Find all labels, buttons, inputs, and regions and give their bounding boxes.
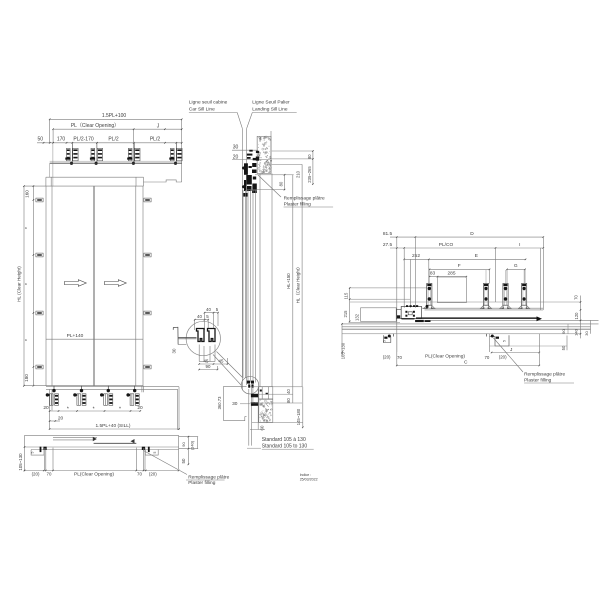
svg-text:Plaster filling: Plaster filling xyxy=(284,202,312,208)
svg-text:*: * xyxy=(119,406,121,412)
svg-text:145~180: 145~180 xyxy=(296,408,301,425)
svg-text:*: * xyxy=(93,406,95,412)
svg-text:Car Sill Line: Car Sill Line xyxy=(189,107,215,113)
svg-text:5: 5 xyxy=(31,451,35,453)
svg-text:Ligne Seuil Palier: Ligne Seuil Palier xyxy=(252,100,290,106)
svg-text:30: 30 xyxy=(233,145,239,151)
svg-text:83: 83 xyxy=(430,271,436,277)
svg-text:70: 70 xyxy=(137,472,142,477)
svg-text:PL(Clear Opening): PL(Clear Opening) xyxy=(425,354,465,360)
svg-text:*: * xyxy=(25,339,31,341)
svg-text:40: 40 xyxy=(206,307,211,312)
svg-text:90: 90 xyxy=(181,442,186,447)
svg-text:5: 5 xyxy=(503,340,507,342)
svg-text:160: 160 xyxy=(25,190,30,198)
svg-text:PL/CO: PL/CO xyxy=(439,242,454,248)
svg-text:81.5: 81.5 xyxy=(383,231,393,237)
svg-text:210: 210 xyxy=(296,170,301,178)
svg-text:PL+140: PL+140 xyxy=(67,333,84,339)
svg-text:45: 45 xyxy=(219,359,224,364)
svg-text:70: 70 xyxy=(47,472,52,477)
svg-text:G: G xyxy=(514,263,518,269)
svg-text:Standard 105 à 130: Standard 105 à 130 xyxy=(262,437,306,443)
svg-text:90: 90 xyxy=(561,329,566,334)
svg-text:27.5: 27.5 xyxy=(383,242,393,248)
svg-text:140: 140 xyxy=(574,328,579,335)
svg-text:E: E xyxy=(475,253,478,259)
svg-text:70: 70 xyxy=(574,295,579,300)
svg-text:*: * xyxy=(25,283,31,285)
svg-text:Standard 105 to 130: Standard 105 to 130 xyxy=(262,444,308,450)
svg-text:Remplissage plâtre: Remplissage plâtre xyxy=(284,196,325,202)
svg-text:30: 30 xyxy=(584,331,589,336)
svg-text:20: 20 xyxy=(137,405,143,411)
svg-text:90: 90 xyxy=(206,364,211,369)
svg-text:Indice :: Indice : xyxy=(300,473,312,477)
svg-text:(20): (20) xyxy=(383,355,391,360)
svg-text:70: 70 xyxy=(397,355,402,360)
svg-text:Landing Sill Line: Landing Sill Line xyxy=(252,107,288,113)
svg-text:180: 180 xyxy=(24,374,29,382)
svg-text:PL/2: PL/2 xyxy=(108,137,119,143)
svg-text:360.73: 360.73 xyxy=(217,396,222,409)
svg-text:20: 20 xyxy=(43,405,49,411)
svg-text:20: 20 xyxy=(58,416,64,422)
svg-text:25/03/2022: 25/03/2022 xyxy=(300,478,318,482)
svg-text:C: C xyxy=(464,360,468,366)
svg-text:70: 70 xyxy=(484,355,489,360)
svg-text:80: 80 xyxy=(286,398,291,403)
svg-text:F: F xyxy=(458,263,461,269)
svg-text:105~130: 105~130 xyxy=(341,342,346,359)
svg-text:*: * xyxy=(25,227,31,229)
svg-text:40: 40 xyxy=(286,389,291,394)
svg-text:5: 5 xyxy=(382,340,386,342)
svg-text:252: 252 xyxy=(412,253,420,259)
svg-text:50: 50 xyxy=(38,137,44,143)
svg-text:40: 40 xyxy=(197,314,202,319)
svg-text:80: 80 xyxy=(278,181,283,186)
svg-text:PL（Clear Opening）: PL（Clear Opening） xyxy=(71,123,119,129)
svg-text:I: I xyxy=(519,242,520,248)
svg-text:(20): (20) xyxy=(499,355,507,360)
svg-text:30: 30 xyxy=(171,348,176,353)
svg-text:*: * xyxy=(67,406,69,412)
svg-text:Remplissage plâtre: Remplissage plâtre xyxy=(524,372,565,378)
svg-text:PL/2: PL/2 xyxy=(150,137,161,143)
svg-text:120: 120 xyxy=(574,312,579,320)
svg-text:Remplissage plâtre: Remplissage plâtre xyxy=(188,475,229,481)
svg-text:285: 285 xyxy=(447,271,455,277)
svg-text:50: 50 xyxy=(181,458,186,463)
svg-text:115: 115 xyxy=(343,292,348,299)
svg-text:(20): (20) xyxy=(32,471,40,476)
svg-text:(140): (140) xyxy=(190,440,195,450)
svg-text:1.5PL+40 (SILL): 1.5PL+40 (SILL) xyxy=(95,423,130,429)
svg-text:45: 45 xyxy=(204,359,209,364)
svg-text:170: 170 xyxy=(57,137,66,143)
svg-text:(20): (20) xyxy=(149,471,157,476)
svg-text:HL（Clear Height）: HL（Clear Height） xyxy=(296,265,301,304)
svg-text:PL(Clear Opening): PL(Clear Opening) xyxy=(74,472,114,478)
svg-text:235~265: 235~265 xyxy=(307,166,312,183)
svg-text:Plaster filling: Plaster filling xyxy=(524,378,552,384)
svg-text:HL (Clear Height): HL (Clear Height) xyxy=(17,266,22,302)
svg-text:1.5PL+100: 1.5PL+100 xyxy=(102,113,127,119)
svg-text:PL/2-170: PL/2-170 xyxy=(73,137,94,143)
svg-text:D: D xyxy=(470,231,474,237)
svg-text:132: 132 xyxy=(354,313,359,321)
svg-text:Ligne seuil cabine: Ligne seuil cabine xyxy=(189,100,228,106)
svg-text:HL+150: HL+150 xyxy=(286,273,291,289)
svg-text:5: 5 xyxy=(153,451,157,453)
svg-text:105~130: 105~130 xyxy=(18,453,23,471)
svg-text:215: 215 xyxy=(343,310,348,318)
svg-text:30: 30 xyxy=(232,401,238,407)
svg-text:Plaster filling: Plaster filling xyxy=(188,480,216,486)
svg-text:80: 80 xyxy=(307,154,312,159)
